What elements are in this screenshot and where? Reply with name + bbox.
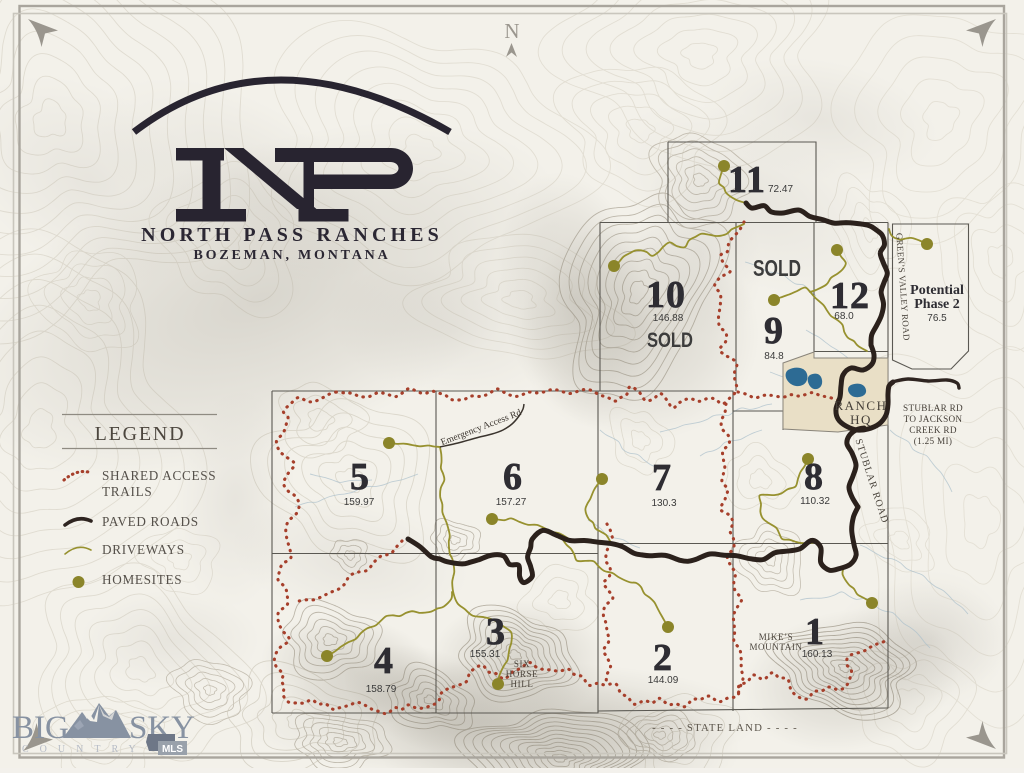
svg-text:10: 10 <box>646 274 686 316</box>
svg-text:LEGEND: LEGEND <box>95 423 186 445</box>
svg-text:146.88: 146.88 <box>653 313 684 324</box>
svg-text:3: 3 <box>486 611 506 653</box>
svg-text:SOLD: SOLD <box>753 255 801 281</box>
svg-text:(1.25 MI): (1.25 MI) <box>914 436 952 446</box>
svg-text:SOLD: SOLD <box>647 329 693 352</box>
svg-text:76.5: 76.5 <box>927 313 947 324</box>
svg-text:159.97: 159.97 <box>344 497 375 508</box>
svg-text:9: 9 <box>764 310 784 352</box>
svg-text:NORTH PASS RANCHES: NORTH PASS RANCHES <box>141 224 443 246</box>
svg-text:TO JACKSON: TO JACKSON <box>904 414 963 424</box>
svg-text:TRAILS: TRAILS <box>102 484 152 499</box>
svg-text:8: 8 <box>804 456 824 498</box>
svg-text:160.13: 160.13 <box>802 649 833 660</box>
svg-text:MLS: MLS <box>162 744 183 755</box>
svg-text:HOMESITES: HOMESITES <box>102 572 182 587</box>
svg-text:STUBLAR RD: STUBLAR RD <box>903 403 963 413</box>
svg-text:1: 1 <box>805 611 825 653</box>
svg-text:158.79: 158.79 <box>366 684 397 695</box>
svg-text:COUNTRY: COUNTRY <box>22 744 147 755</box>
svg-text:HQ: HQ <box>850 412 872 427</box>
svg-text:7: 7 <box>652 457 672 499</box>
svg-text:BIG: BIG <box>12 710 69 746</box>
svg-text:- - - - STATE LAND - - - -: - - - - STATE LAND - - - - <box>652 722 798 734</box>
svg-text:HILL: HILL <box>511 679 534 689</box>
svg-text:N: N <box>504 19 519 43</box>
svg-text:CREEK RD: CREEK RD <box>909 425 957 435</box>
svg-text:DRIVEWAYS: DRIVEWAYS <box>102 542 185 557</box>
svg-text:130.3: 130.3 <box>651 498 676 509</box>
svg-text:72.47: 72.47 <box>768 184 793 195</box>
svg-text:MIKE’S: MIKE’S <box>759 632 794 642</box>
svg-text:RANCH: RANCH <box>834 398 887 413</box>
svg-text:PAVED ROADS: PAVED ROADS <box>102 514 199 529</box>
svg-text:155.31: 155.31 <box>470 649 501 660</box>
svg-text:2: 2 <box>653 637 673 679</box>
svg-text:HORSE: HORSE <box>506 669 539 679</box>
svg-text:110.32: 110.32 <box>800 496 830 507</box>
svg-text:Potential: Potential <box>910 283 964 298</box>
svg-text:5: 5 <box>350 456 370 498</box>
svg-text:SIX: SIX <box>514 659 530 669</box>
svg-text:SHARED ACCESS: SHARED ACCESS <box>102 468 216 483</box>
svg-text:6: 6 <box>503 456 523 498</box>
svg-text:Phase 2: Phase 2 <box>914 297 960 312</box>
svg-text:BOZEMAN, MONTANA: BOZEMAN, MONTANA <box>194 248 391 263</box>
svg-text:157.27: 157.27 <box>496 497 527 508</box>
svg-text:144.09: 144.09 <box>648 675 679 686</box>
svg-text:4: 4 <box>374 640 394 682</box>
svg-text:11: 11 <box>728 159 766 201</box>
svg-text:MOUNTAIN: MOUNTAIN <box>749 642 802 652</box>
svg-text:84.8: 84.8 <box>764 351 784 362</box>
svg-text:68.0: 68.0 <box>834 311 854 322</box>
